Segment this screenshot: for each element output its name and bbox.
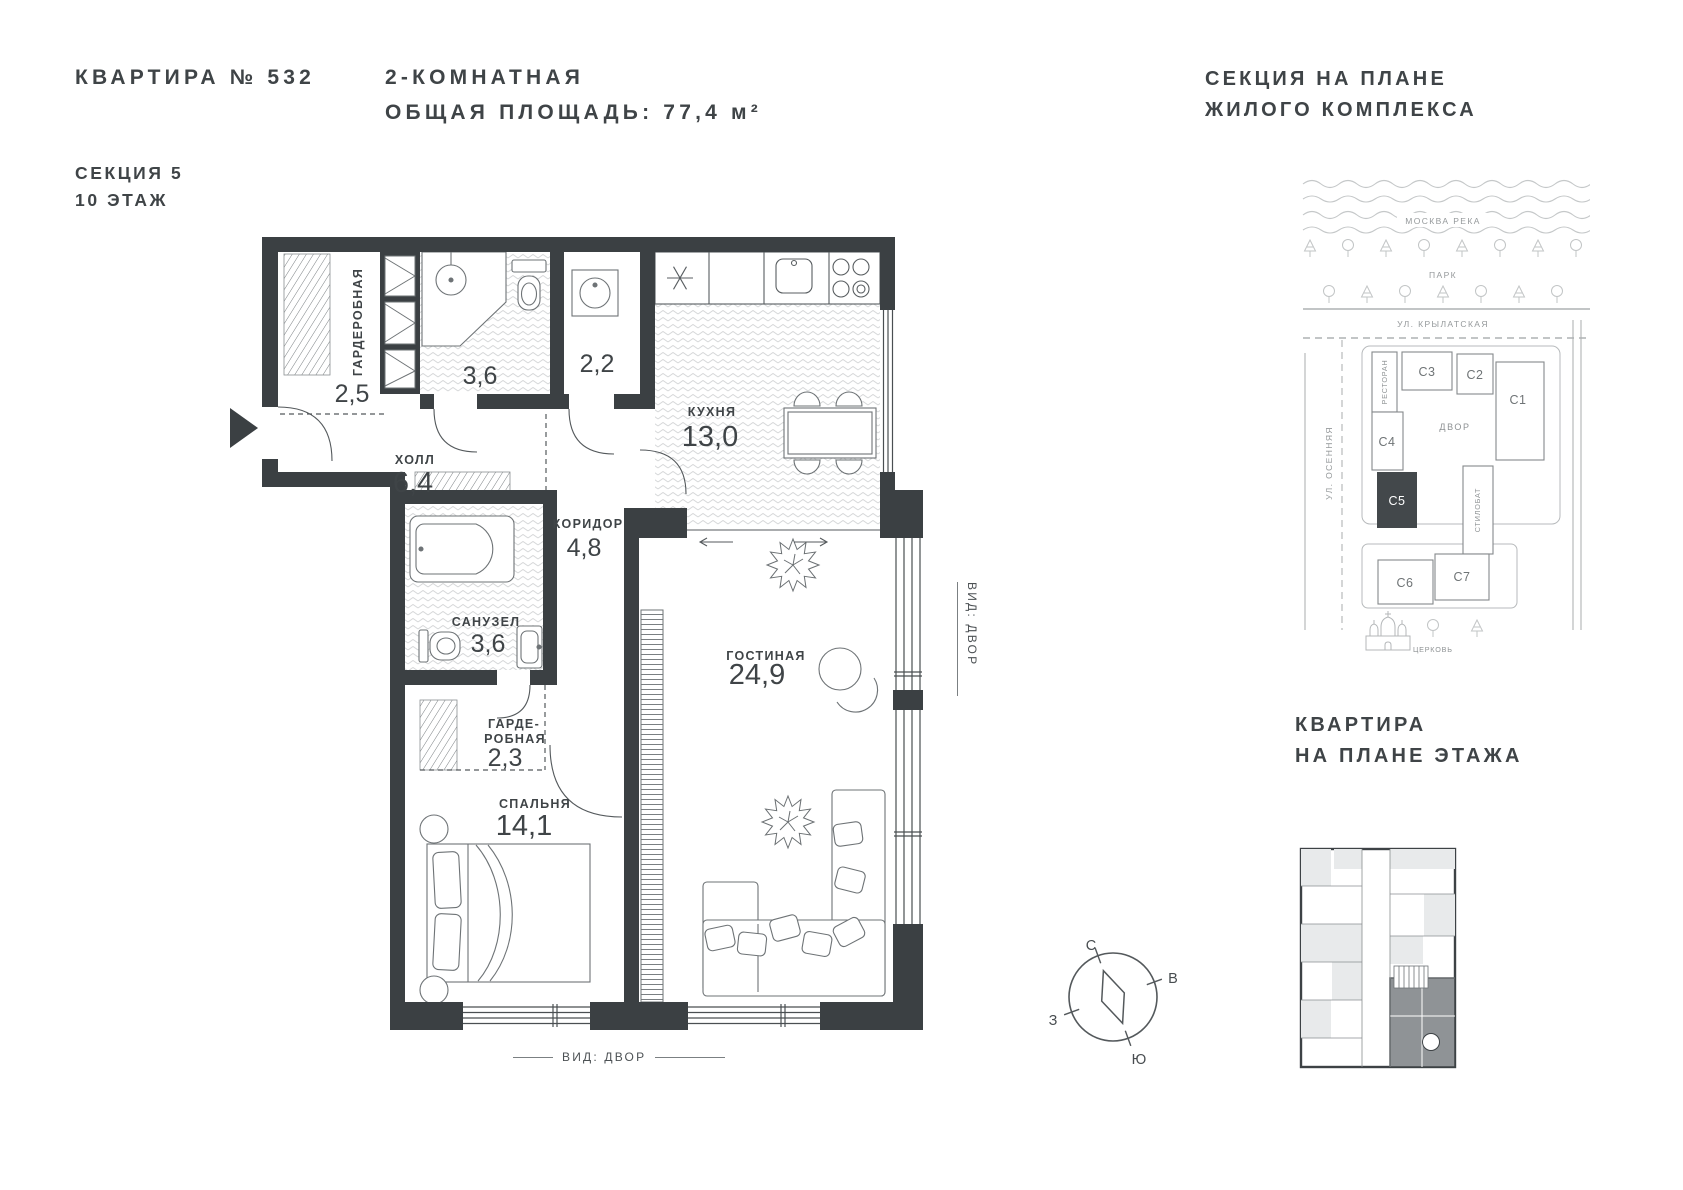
bathtub-icon — [410, 516, 514, 582]
pillow-icon — [833, 821, 864, 847]
sliding-door-arrows — [700, 538, 827, 546]
label-c7: С7 — [1454, 570, 1471, 584]
room-name-kitchen: КУХНЯ — [688, 405, 737, 419]
conifer-tree-icon — [1457, 240, 1468, 257]
bathroom-door-arc — [434, 409, 477, 452]
site-map-title: СЕКЦИЯ НА ПЛАНЕ ЖИЛОГО КОМПЛЕКСА — [1205, 64, 1477, 126]
thumb-title-line2: НА ПЛАНЕ ЭТАЖА — [1295, 741, 1523, 772]
total-area-label: ОБЩАЯ ПЛОЩАДЬ: 77,4 м² — [385, 101, 762, 125]
restaurant-label: РЕСТОРАН — [1380, 360, 1389, 405]
kitchen-counter — [655, 252, 880, 304]
conifer-tree-icon — [1472, 620, 1483, 637]
plant-icon — [767, 539, 819, 591]
deciduous-tree-icon — [1343, 240, 1354, 258]
washing-machine-icon — [572, 270, 618, 316]
church-icon — [1366, 611, 1410, 650]
page-title: КВАРТИРА № 532 — [75, 66, 315, 90]
compass-east: В — [1168, 971, 1178, 987]
window-bedroom — [463, 1004, 590, 1027]
view-right-text: ВИД: ДВОР — [965, 582, 979, 696]
tall-wardrobe — [641, 610, 663, 1002]
deciduous-tree-icon — [1419, 240, 1430, 258]
floor-label: 10 ЭТАЖ — [75, 187, 183, 214]
conifer-tree-icon — [1305, 240, 1316, 257]
wardrobe-hatch — [420, 700, 457, 770]
room-area-kitchen: 13,0 — [682, 421, 738, 453]
laundry-door-arc — [569, 409, 614, 454]
bed-icon — [420, 815, 590, 1004]
room-area-laundry: 2,2 — [580, 350, 615, 378]
label-c2: С2 — [1467, 368, 1484, 382]
compass-ticks — [1064, 948, 1162, 1046]
toilet-icon — [419, 630, 460, 662]
courtyard-label: ДВОР — [1439, 422, 1470, 432]
room-name-corridor: КОРИДОР — [553, 517, 624, 531]
pillow-icon — [433, 913, 462, 970]
label-c4: С4 — [1379, 435, 1396, 449]
room-area-wardrobe1: 2,5 — [335, 380, 370, 408]
label-c5: С5 — [1389, 494, 1406, 508]
deciduous-tree-icon — [1324, 286, 1335, 304]
sink-icon — [517, 626, 542, 668]
deciduous-tree-icon — [1571, 240, 1582, 258]
label-c6: С6 — [1397, 576, 1414, 590]
park-label: ПАРК — [1429, 270, 1457, 280]
divider-line — [655, 1057, 725, 1058]
compass-west: З — [1049, 1013, 1058, 1029]
deciduous-tree-icon — [1495, 240, 1506, 258]
compass-icon: С В З Ю — [1040, 920, 1190, 1070]
conifer-tree-icon — [1362, 286, 1373, 303]
street-top-label: УЛ. КРЫЛАТСКАЯ — [1397, 319, 1489, 329]
site-map-title-line2: ЖИЛОГО КОМПЛЕКСА — [1205, 95, 1477, 126]
entry-arrow-icon — [230, 408, 258, 448]
rooms-type-label: 2-КОМНАТНАЯ — [385, 66, 762, 90]
buildings — [1372, 352, 1544, 604]
window-living-bottom — [688, 1004, 820, 1027]
site-map-title-line1: СЕКЦИЯ НА ПЛАНЕ — [1205, 64, 1477, 95]
compass-south: Ю — [1132, 1052, 1147, 1068]
divider-line — [957, 582, 958, 696]
room-name-hall: ХОЛЛ — [395, 453, 435, 467]
label-c1: С1 — [1510, 393, 1527, 407]
room-area-bathroom1: 3,6 — [463, 362, 498, 390]
apartment-plan-page: КВАРТИРА № 532 СЕКЦИЯ 5 10 ЭТАЖ 2-КОМНАТ… — [0, 0, 1683, 1190]
room-name-bedroom: СПАЛЬНЯ — [499, 797, 571, 811]
room-area-living: 24,9 — [729, 659, 785, 691]
floor-plan: ГАРДЕРОБНАЯ 2,5 3,6 2,2 КУХНЯ 13,0 ХОЛЛ … — [228, 232, 942, 1034]
nightstand-icon — [420, 976, 448, 1004]
room-area-wc: 3,6 — [471, 630, 506, 658]
compass-needle — [1102, 971, 1125, 1024]
room-name-wardrobe1: ГАРДЕРОБНАЯ — [351, 268, 365, 376]
room-area-corridor: 4,8 — [567, 534, 602, 562]
church-label: ЦЕРКОВЬ — [1413, 645, 1453, 654]
view-bottom-text: ВИД: ДВОР — [562, 1050, 646, 1064]
section-floor-block: СЕКЦИЯ 5 10 ЭТАЖ — [75, 160, 183, 214]
thumb-location-badge — [1423, 1034, 1440, 1051]
conifer-tree-icon — [1514, 286, 1525, 303]
deciduous-tree-icon — [1428, 620, 1439, 638]
view-label-right: ВИД: ДВОР — [957, 582, 979, 696]
kitchen-sink-icon — [776, 259, 812, 293]
section-label: СЕКЦИЯ 5 — [75, 160, 183, 187]
stylobate-label: СТИЛОБАТ — [1473, 488, 1482, 532]
conifer-tree-icon — [1533, 240, 1544, 257]
room-area-wardrobe2: 2,3 — [488, 744, 523, 772]
compass-north: С — [1086, 938, 1096, 954]
pillow-icon — [737, 932, 767, 957]
floor-plan-thumbnail — [1298, 846, 1458, 1070]
thumb-stairs-icon — [1394, 966, 1428, 988]
site-map: МОСКВА РЕКА ПАРК УЛ. КРЫЛАТСКАЯ — [1205, 168, 1590, 688]
river-label: МОСКВА РЕКА — [1405, 216, 1481, 226]
room-name-wardrobe2-l1: ГАРДЕ- — [488, 717, 540, 731]
wc-door-arc — [497, 685, 530, 718]
conifer-tree-icon — [1438, 286, 1449, 303]
deciduous-tree-icon — [1552, 286, 1563, 304]
apartment-type-block: 2-КОМНАТНАЯ ОБЩАЯ ПЛОЩАДЬ: 77,4 м² — [385, 66, 762, 136]
building-c1 — [1496, 362, 1544, 460]
deciduous-tree-icon — [1476, 286, 1487, 304]
deciduous-tree-icon — [1400, 286, 1411, 304]
label-c3: С3 — [1419, 365, 1436, 379]
pillow-icon — [433, 851, 462, 908]
thumb-title-line1: КВАРТИРА — [1295, 710, 1523, 741]
room-area-bedroom: 14,1 — [496, 810, 552, 842]
room-area-hall: 6,4 — [393, 467, 433, 499]
compass-labels: С В З Ю — [1049, 938, 1178, 1068]
pillow-icon — [801, 931, 832, 958]
room-name-wc: САНУЗЕЛ — [452, 615, 521, 629]
entry-door-arc — [278, 407, 332, 461]
view-label-bottom: ВИД: ДВОР — [513, 1050, 725, 1064]
street-left-label: УЛ. ОСЕННЯЯ — [1324, 426, 1334, 500]
hall-closet — [385, 256, 415, 388]
conifer-tree-icon — [1381, 240, 1392, 257]
plant-icon — [762, 796, 814, 848]
wardrobe-hatch — [284, 254, 330, 375]
floor-thumbnail-title: КВАРТИРА НА ПЛАНЕ ЭТАЖА — [1295, 710, 1523, 772]
armchair-icon — [819, 648, 878, 712]
divider-line — [513, 1057, 553, 1058]
nightstand-icon — [420, 815, 448, 843]
window-living-lower — [894, 710, 922, 924]
window-living-upper — [894, 538, 922, 690]
